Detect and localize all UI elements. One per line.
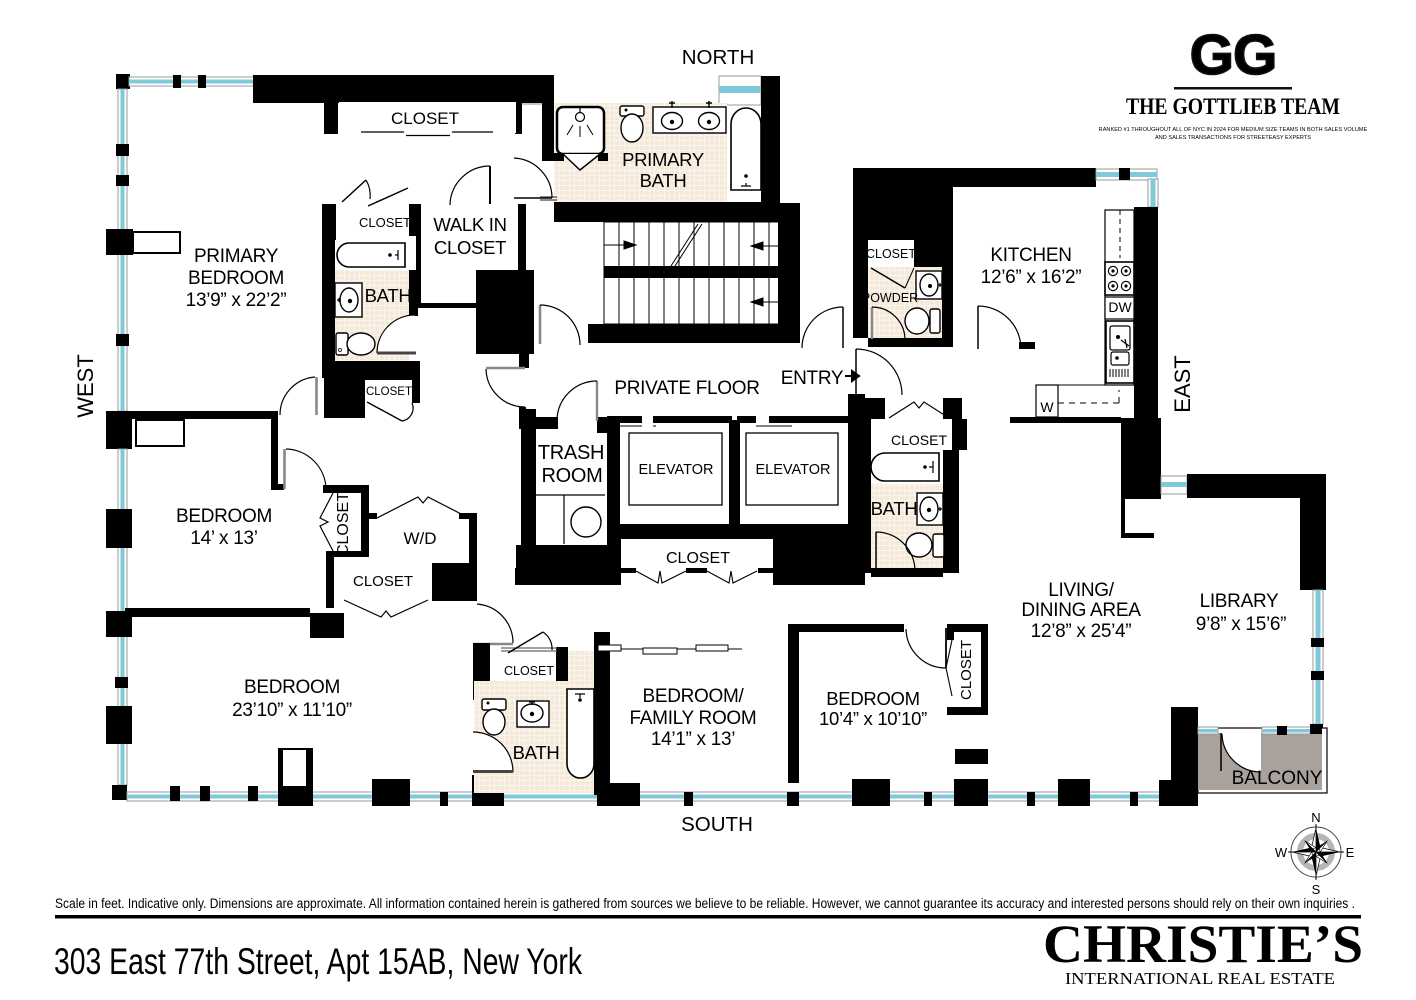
svg-text:CLOSET: CLOSET bbox=[353, 573, 413, 590]
svg-text:12’8” x 25’4”: 12’8” x 25’4” bbox=[1031, 621, 1132, 642]
svg-text:BATH: BATH bbox=[640, 170, 687, 191]
svg-text:BEDROOM: BEDROOM bbox=[188, 268, 284, 289]
svg-text:INTERNATIONAL REAL ESTATE: INTERNATIONAL REAL ESTATE bbox=[1065, 969, 1335, 988]
svg-text:23’10” x 11’10”: 23’10” x 11’10” bbox=[232, 700, 352, 721]
svg-text:CLOSET: CLOSET bbox=[891, 432, 947, 448]
svg-text:ELEVATOR: ELEVATOR bbox=[639, 462, 714, 478]
svg-text:CLOSET: CLOSET bbox=[958, 640, 975, 700]
svg-text:TRASH: TRASH bbox=[538, 442, 604, 464]
svg-text:PRIMARY: PRIMARY bbox=[194, 246, 279, 267]
svg-text:BEDROOM/: BEDROOM/ bbox=[642, 686, 744, 707]
svg-text:PRIMARY: PRIMARY bbox=[622, 149, 704, 170]
svg-text:GG: GG bbox=[1190, 23, 1277, 87]
svg-text:CLOSET: CLOSET bbox=[866, 247, 916, 261]
svg-text:WEST: WEST bbox=[73, 354, 98, 418]
svg-text:9’8” x 15’6”: 9’8” x 15’6” bbox=[1196, 614, 1286, 635]
svg-text:CLOSET: CLOSET bbox=[366, 386, 412, 398]
svg-text:BEDROOM: BEDROOM bbox=[176, 506, 272, 527]
svg-text:W/D: W/D bbox=[403, 529, 436, 548]
svg-text:BATH: BATH bbox=[365, 285, 412, 306]
svg-text:RANKED #1 THROUGHOUT ALL OF NY: RANKED #1 THROUGHOUT ALL OF NYC IN 2024 … bbox=[1099, 127, 1368, 133]
svg-text:303 East 77th Street, Apt 15AB: 303 East 77th Street, Apt 15AB, New York bbox=[54, 941, 582, 982]
svg-text:S: S bbox=[1312, 882, 1321, 897]
svg-text:AND SALES TRANSACTIONS FOR STR: AND SALES TRANSACTIONS FOR STREETEASY EX… bbox=[1155, 135, 1311, 141]
svg-text:WALK IN: WALK IN bbox=[433, 214, 506, 235]
svg-text:BALCONY: BALCONY bbox=[1232, 768, 1323, 789]
svg-text:BEDROOM: BEDROOM bbox=[826, 688, 920, 709]
svg-text:14’ x 13’: 14’ x 13’ bbox=[190, 528, 257, 549]
svg-text:W: W bbox=[1040, 399, 1054, 415]
svg-text:N: N bbox=[1311, 810, 1320, 825]
svg-text:PRIVATE FLOOR: PRIVATE FLOOR bbox=[614, 378, 759, 399]
svg-text:12’6” x 16’2”: 12’6” x 16’2” bbox=[981, 267, 1082, 288]
svg-text:ELEVATOR: ELEVATOR bbox=[756, 462, 831, 478]
svg-text:KITCHEN: KITCHEN bbox=[990, 245, 1071, 266]
svg-text:THE GOTTLIEB TEAM: THE GOTTLIEB TEAM bbox=[1126, 94, 1340, 119]
svg-text:13’9” x 22’2”: 13’9” x 22’2” bbox=[186, 290, 287, 311]
svg-text:CLOSET: CLOSET bbox=[391, 109, 459, 128]
svg-text:BEDROOM: BEDROOM bbox=[244, 677, 340, 698]
svg-text:10’4” x 10’10”: 10’4” x 10’10” bbox=[819, 708, 927, 729]
svg-text:CLOSET: CLOSET bbox=[504, 664, 554, 678]
svg-text:CHRISTIE’S: CHRISTIE’S bbox=[1043, 914, 1363, 974]
svg-text:POWDER: POWDER bbox=[862, 291, 918, 305]
svg-text:DINING AREA: DINING AREA bbox=[1021, 600, 1141, 621]
svg-text:LIVING/: LIVING/ bbox=[1048, 580, 1114, 601]
svg-text:E: E bbox=[1346, 845, 1355, 860]
svg-text:BATH: BATH bbox=[871, 498, 918, 519]
svg-text:W: W bbox=[1275, 845, 1288, 860]
svg-text:DW: DW bbox=[1108, 299, 1132, 315]
svg-text:CLOSET: CLOSET bbox=[335, 492, 352, 556]
svg-text:ROOM: ROOM bbox=[541, 465, 602, 487]
svg-text:SOUTH: SOUTH bbox=[681, 813, 753, 836]
svg-text:14’1” x 13’: 14’1” x 13’ bbox=[651, 729, 735, 750]
svg-text:EAST: EAST bbox=[1170, 355, 1195, 412]
svg-text:BATH: BATH bbox=[513, 742, 560, 763]
svg-text:NORTH: NORTH bbox=[682, 46, 755, 69]
svg-text:LIBRARY: LIBRARY bbox=[1200, 591, 1279, 612]
svg-text:ENTRY: ENTRY bbox=[781, 368, 844, 389]
svg-text:CLOSET: CLOSET bbox=[359, 215, 411, 230]
svg-text:Scale in feet. Indicative only: Scale in feet. Indicative only. Dimensio… bbox=[55, 896, 1355, 911]
svg-text:FAMILY ROOM: FAMILY ROOM bbox=[630, 708, 757, 729]
svg-text:CLOSET: CLOSET bbox=[666, 550, 730, 567]
svg-text:CLOSET: CLOSET bbox=[434, 237, 506, 258]
